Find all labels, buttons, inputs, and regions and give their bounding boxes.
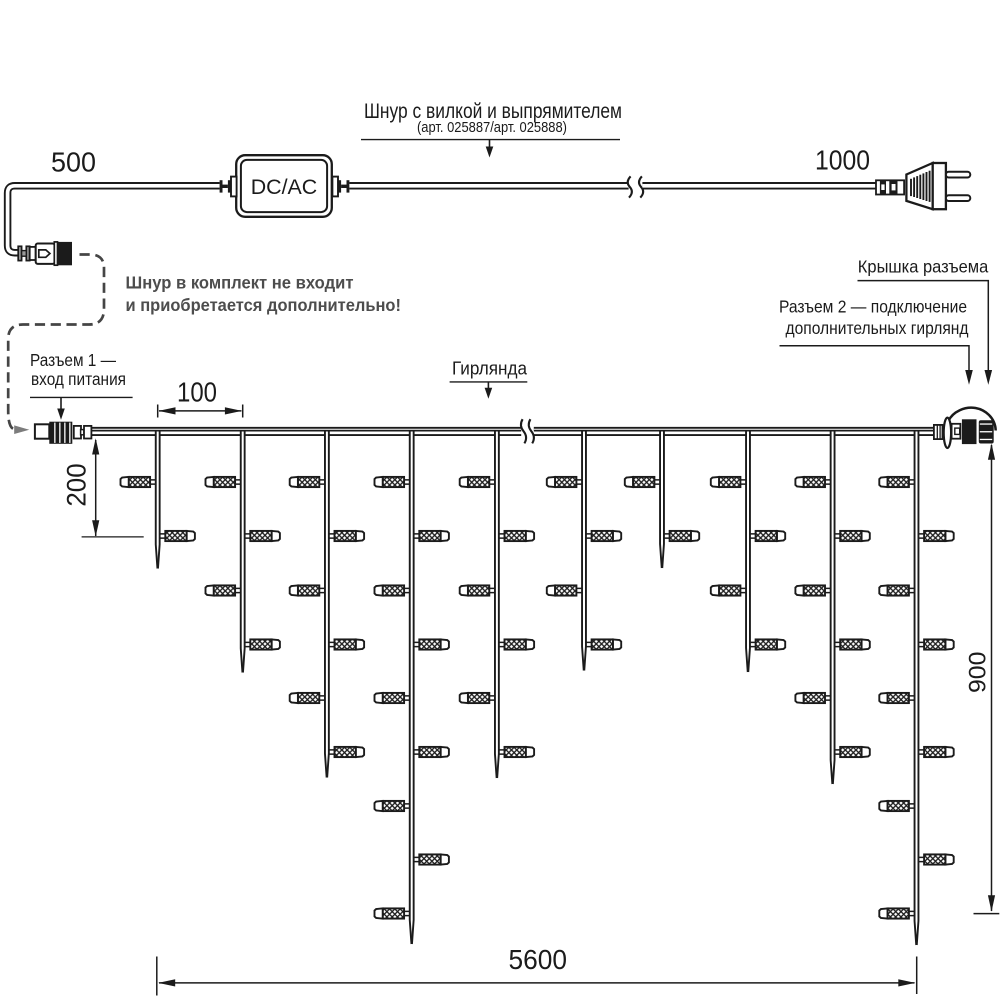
svg-text:100: 100 xyxy=(177,377,217,408)
svg-text:Крышка разъема: Крышка разъема xyxy=(858,256,989,276)
svg-text:1000: 1000 xyxy=(815,145,870,176)
svg-text:Шнур в комплект не входит: Шнур в комплект не входит xyxy=(126,273,354,293)
svg-text:DC/AC: DC/AC xyxy=(251,174,318,199)
svg-text:5600: 5600 xyxy=(509,944,568,975)
svg-text:500: 500 xyxy=(51,147,96,178)
svg-text:(арт. 025887/арт. 025888): (арт. 025887/арт. 025888) xyxy=(417,120,567,136)
svg-text:200: 200 xyxy=(62,463,92,506)
svg-text:Гирлянда: Гирлянда xyxy=(452,357,528,378)
svg-text:900: 900 xyxy=(964,652,991,694)
svg-text:вход питания: вход питания xyxy=(31,369,126,389)
svg-text:Разъем 1 —: Разъем 1 — xyxy=(30,350,117,370)
svg-text:Разъем 2 — подключение: Разъем 2 — подключение xyxy=(779,297,967,317)
svg-text:и приобретается дополнительно!: и приобретается дополнительно! xyxy=(126,295,402,315)
svg-text:дополнительных гирлянд: дополнительных гирлянд xyxy=(786,318,969,338)
